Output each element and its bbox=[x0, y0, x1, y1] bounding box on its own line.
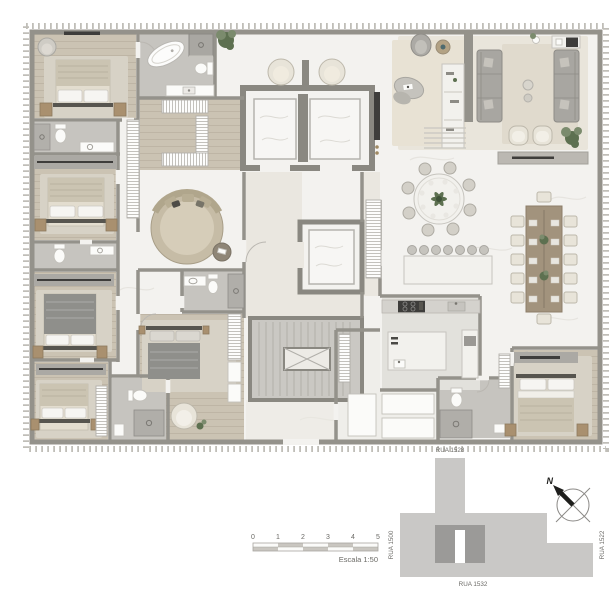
closet-shelves bbox=[339, 334, 350, 382]
round-chair bbox=[171, 403, 197, 429]
closet-shelves bbox=[228, 314, 241, 360]
toilet-icon bbox=[54, 249, 65, 263]
street-label-left: RUA 1500 bbox=[388, 530, 395, 559]
service-bed bbox=[348, 394, 376, 436]
island-counter bbox=[404, 256, 492, 284]
floor-plan-page: 0 1 2 3 4 5 Escala 1:50 RUA 1528 RUA 150… bbox=[0, 0, 615, 600]
closet-shelves bbox=[499, 354, 510, 388]
site-lot bbox=[400, 458, 593, 577]
toilet-icon bbox=[208, 281, 218, 294]
media-console bbox=[552, 36, 580, 48]
scale-tick-3: 3 bbox=[326, 534, 330, 541]
coffee-table bbox=[524, 94, 532, 102]
living-partition bbox=[464, 32, 473, 122]
toilet-icon bbox=[195, 62, 213, 75]
bed bbox=[33, 294, 107, 358]
cabinet bbox=[382, 418, 434, 438]
console-table bbox=[498, 152, 588, 164]
vanity bbox=[80, 142, 114, 152]
kitchen-island bbox=[388, 332, 446, 370]
bedroom-4 bbox=[31, 364, 107, 436]
round-chair bbox=[319, 59, 345, 85]
shower bbox=[134, 410, 164, 436]
tv bbox=[64, 32, 100, 36]
round-chair bbox=[268, 59, 294, 85]
scale-tick-4: 4 bbox=[351, 534, 355, 541]
scale-label: Escala 1:50 bbox=[339, 555, 378, 564]
shower bbox=[228, 274, 244, 308]
street-label-top: RUA 1528 bbox=[436, 447, 465, 454]
pantry-shelves bbox=[366, 200, 381, 278]
scale-tick-1: 1 bbox=[276, 534, 280, 541]
scale-bar: 0 1 2 3 4 5 Escala 1:50 bbox=[251, 534, 380, 564]
building-core bbox=[455, 530, 465, 563]
shower bbox=[189, 34, 213, 56]
service-elevator-cab bbox=[309, 230, 354, 284]
shower bbox=[440, 410, 472, 438]
shower bbox=[34, 124, 50, 150]
sink bbox=[114, 424, 124, 436]
toilet-icon bbox=[451, 393, 462, 407]
sink bbox=[494, 424, 506, 433]
street-label-bottom: RUA 1532 bbox=[459, 581, 488, 588]
elevator-cab-2 bbox=[310, 99, 360, 159]
elevator-cab-1 bbox=[254, 99, 296, 159]
cooktop-icon bbox=[398, 301, 425, 313]
armchair bbox=[533, 126, 552, 145]
vanity bbox=[166, 85, 214, 96]
kitchen bbox=[382, 300, 480, 378]
scale-tick-0: 0 bbox=[251, 534, 255, 541]
wall-stub bbox=[302, 60, 309, 89]
curved-armchair bbox=[411, 34, 431, 56]
north-arrow: N bbox=[547, 476, 591, 522]
closet-shelves bbox=[96, 386, 107, 436]
coffee-table bbox=[523, 80, 533, 90]
sofa bbox=[554, 50, 579, 122]
ladder-shelf bbox=[442, 64, 464, 148]
cabinet bbox=[382, 394, 434, 414]
scale-tick-5: 5 bbox=[376, 534, 380, 541]
armchair bbox=[509, 126, 528, 145]
toilet-icon bbox=[133, 390, 147, 401]
north-label: N bbox=[547, 476, 554, 486]
tv-panel bbox=[374, 92, 380, 140]
vanity bbox=[184, 276, 206, 286]
toilet-icon bbox=[55, 129, 66, 143]
floor-plan bbox=[26, 26, 606, 449]
armchair bbox=[38, 38, 56, 56]
street-label-right: RUA 1522 bbox=[599, 530, 606, 559]
site-plan: RUA 1528 RUA 1500 RUA 1532 RUA 1522 N bbox=[388, 447, 606, 588]
oven bbox=[464, 336, 476, 346]
scale-tick-2: 2 bbox=[301, 534, 305, 541]
sofa bbox=[477, 50, 502, 122]
